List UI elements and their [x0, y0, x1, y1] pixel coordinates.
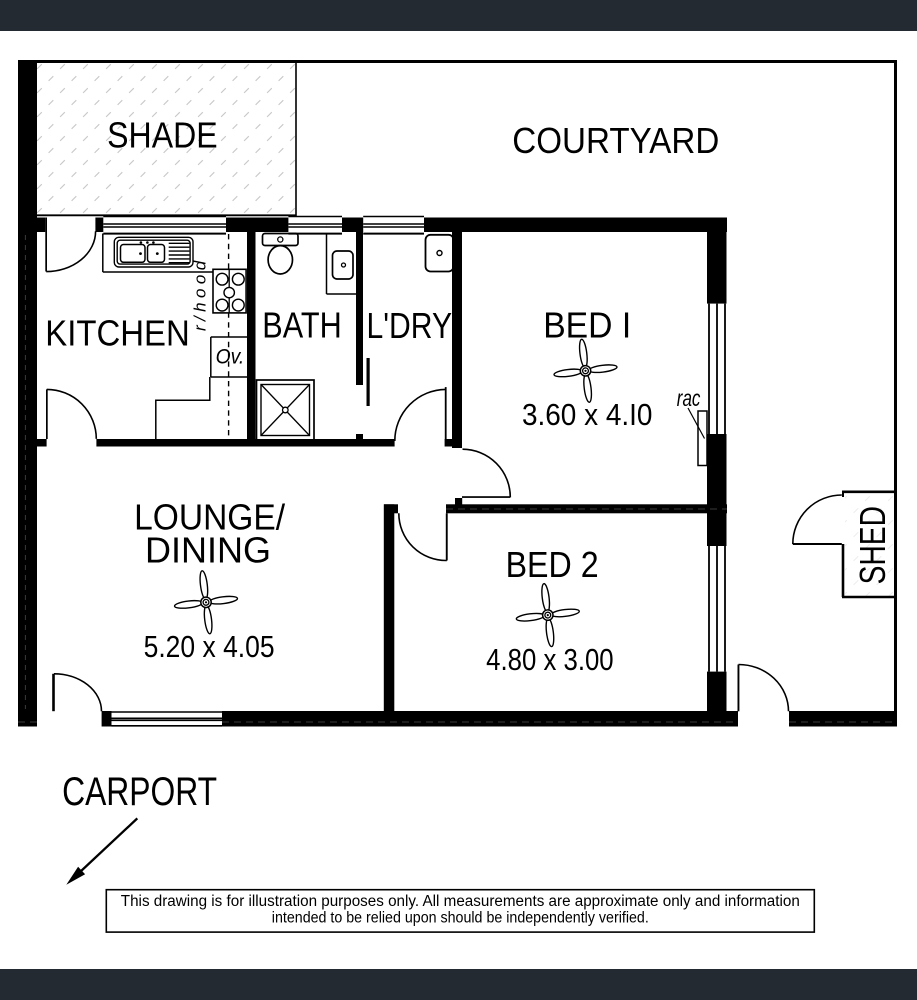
- svg-text:5.20 x 4.05: 5.20 x 4.05: [144, 629, 275, 664]
- svg-text:CARPORT: CARPORT: [62, 770, 217, 814]
- svg-text:Ov.: Ov.: [216, 346, 245, 369]
- svg-text:SHED: SHED: [852, 506, 893, 584]
- svg-text:SHADE: SHADE: [107, 115, 218, 156]
- svg-text:4.80 x 3.00: 4.80 x 3.00: [486, 642, 614, 677]
- svg-text:BED 2: BED 2: [506, 544, 599, 585]
- svg-text:COURTYARD: COURTYARD: [512, 120, 719, 161]
- svg-text:DINING: DINING: [145, 530, 271, 571]
- svg-text:rac: rac: [677, 385, 701, 411]
- svg-text:3.60 x 4.I0: 3.60 x 4.I0: [522, 397, 653, 432]
- svg-text:This drawing is for illustrati: This drawing is for illustration purpose…: [121, 893, 800, 910]
- svg-text:KITCHEN: KITCHEN: [45, 313, 190, 354]
- svg-text:intended to be relied upon sho: intended to be relied upon should be ind…: [272, 910, 649, 927]
- svg-text:L'DRY: L'DRY: [367, 305, 453, 346]
- svg-text:BATH: BATH: [262, 305, 342, 346]
- svg-text:BED I: BED I: [543, 305, 631, 346]
- svg-text:r/hood: r/hood: [191, 256, 210, 331]
